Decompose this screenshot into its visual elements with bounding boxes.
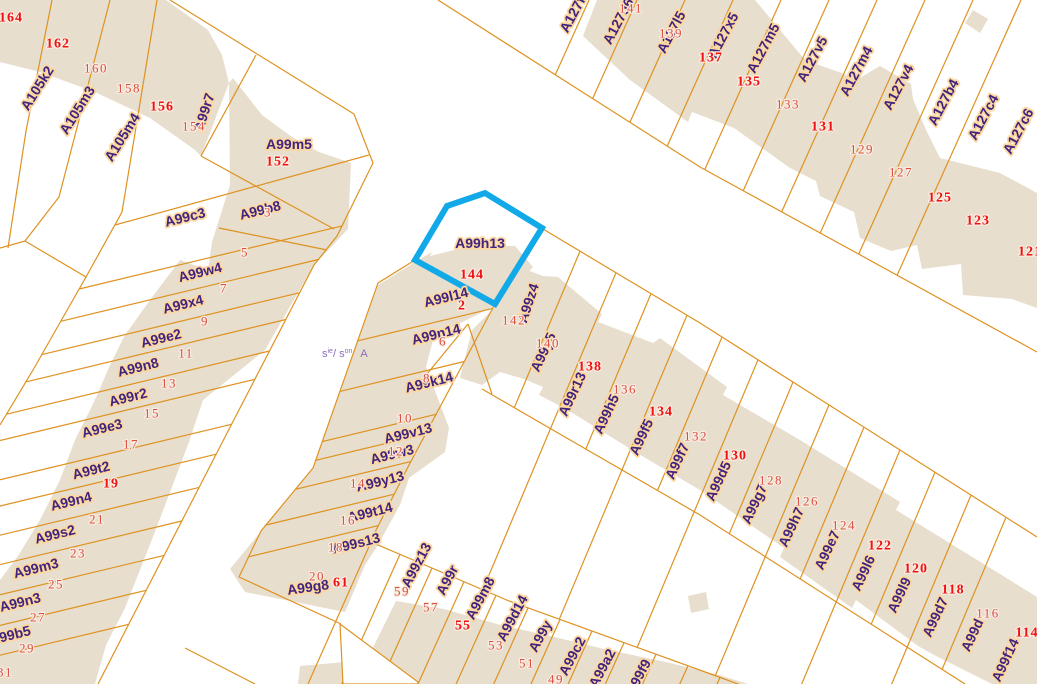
svg-text:126: 126 [795, 494, 819, 509]
svg-text:25: 25 [48, 577, 64, 592]
svg-text:162: 162 [46, 37, 70, 52]
svg-text:139: 139 [659, 26, 683, 41]
svg-text:129: 129 [850, 142, 874, 157]
svg-text:61: 61 [333, 576, 349, 591]
svg-text:121: 121 [1018, 245, 1037, 260]
svg-text:29: 29 [19, 641, 35, 656]
svg-text:120: 120 [904, 562, 928, 577]
svg-text:114: 114 [1015, 626, 1037, 641]
svg-text:12: 12 [388, 444, 404, 459]
svg-text:142: 142 [502, 313, 526, 328]
svg-text:5: 5 [241, 245, 249, 260]
svg-text:49: 49 [548, 672, 564, 684]
svg-text:15: 15 [144, 406, 160, 421]
svg-text:130: 130 [723, 449, 747, 464]
svg-text:127: 127 [889, 165, 913, 180]
svg-text:131: 131 [811, 120, 835, 135]
svg-text:160: 160 [84, 61, 108, 76]
svg-text:118: 118 [941, 583, 964, 598]
svg-text:132: 132 [684, 429, 708, 444]
svg-text:141: 141 [619, 1, 643, 16]
svg-text:154: 154 [182, 119, 206, 134]
svg-text:134: 134 [649, 405, 673, 420]
svg-text:8: 8 [423, 371, 431, 386]
svg-text:133: 133 [776, 97, 800, 112]
svg-text:57: 57 [423, 600, 439, 615]
svg-text:158: 158 [117, 81, 141, 96]
svg-text:152: 152 [266, 155, 290, 170]
svg-text:51: 51 [519, 656, 535, 671]
svg-text:144: 144 [460, 268, 484, 283]
svg-text:14: 14 [350, 476, 366, 491]
svg-text:31: 31 [0, 665, 13, 680]
svg-text:A99m5: A99m5 [266, 136, 312, 152]
svg-text:9: 9 [201, 314, 209, 329]
svg-text:11: 11 [178, 346, 194, 361]
svg-text:23: 23 [70, 546, 86, 561]
svg-text:116: 116 [976, 606, 1000, 621]
svg-text:3: 3 [264, 205, 272, 220]
svg-text:164: 164 [0, 11, 23, 26]
svg-text:21: 21 [89, 512, 105, 527]
svg-text:137: 137 [699, 51, 723, 66]
svg-text:18: 18 [328, 540, 344, 555]
svg-text:59: 59 [394, 584, 410, 599]
svg-text:140: 140 [536, 336, 560, 351]
svg-text:19: 19 [103, 477, 119, 492]
svg-text:6: 6 [439, 334, 447, 349]
svg-text:156: 156 [150, 100, 174, 115]
svg-text:10: 10 [397, 411, 413, 426]
svg-text:16: 16 [340, 513, 356, 528]
svg-text:53: 53 [488, 638, 504, 653]
svg-text:A99h13: A99h13 [455, 235, 505, 251]
svg-text:128: 128 [759, 473, 783, 488]
svg-text:2: 2 [458, 299, 466, 314]
svg-text:55: 55 [455, 619, 471, 634]
svg-text:135: 135 [737, 75, 761, 90]
svg-text:124: 124 [832, 518, 856, 533]
svg-text:122: 122 [868, 539, 892, 554]
svg-text:123: 123 [966, 214, 990, 229]
svg-text:13: 13 [161, 376, 177, 391]
svg-text:27: 27 [30, 610, 46, 625]
svg-text:138: 138 [578, 360, 602, 375]
svg-text:136: 136 [613, 382, 637, 397]
svg-text:20: 20 [309, 569, 325, 584]
svg-text:125: 125 [928, 191, 952, 206]
svg-text:7: 7 [220, 281, 228, 296]
svg-text:17: 17 [123, 437, 139, 452]
